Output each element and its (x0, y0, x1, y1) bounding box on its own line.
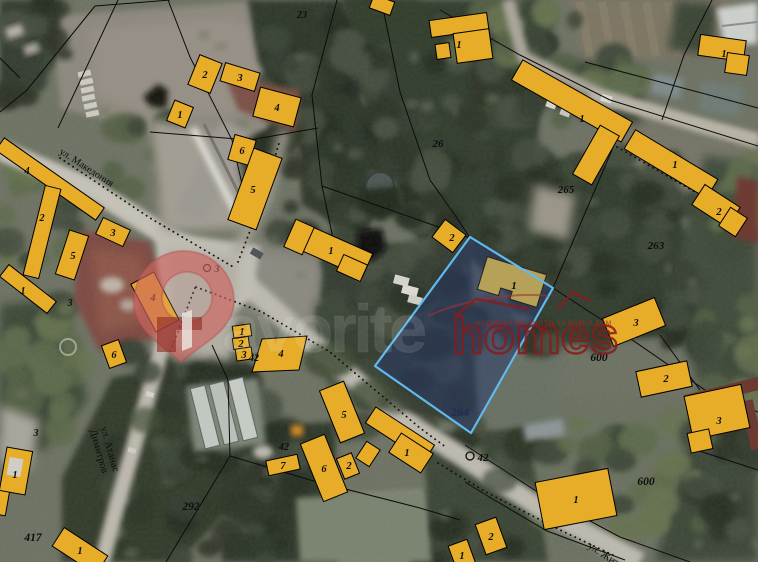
svg-text:1: 1 (177, 110, 182, 121)
svg-text:264: 264 (450, 405, 469, 419)
svg-text:2: 2 (38, 213, 45, 224)
svg-text:5: 5 (250, 185, 255, 196)
svg-text:1: 1 (672, 160, 677, 171)
svg-text:4: 4 (273, 103, 279, 114)
svg-text:417: 417 (23, 532, 43, 544)
svg-text:26: 26 (432, 138, 445, 150)
svg-text:3: 3 (715, 416, 721, 427)
svg-text:3: 3 (67, 298, 73, 309)
svg-text:3: 3 (33, 428, 39, 439)
svg-text:2: 2 (201, 70, 208, 81)
svg-text:4: 4 (23, 166, 29, 177)
svg-text:1: 1 (459, 551, 464, 562)
svg-text:1: 1 (456, 40, 461, 51)
svg-text:1: 1 (579, 114, 584, 125)
svg-text:1: 1 (721, 49, 726, 60)
svg-text:1: 1 (511, 280, 517, 292)
svg-text:7: 7 (280, 461, 286, 472)
svg-text:600: 600 (637, 476, 655, 488)
svg-text:6: 6 (111, 350, 117, 361)
svg-text:42: 42 (477, 452, 490, 464)
svg-text:3: 3 (236, 73, 242, 84)
svg-text:2: 2 (345, 461, 352, 472)
svg-text:1: 1 (20, 286, 25, 297)
svg-text:6: 6 (239, 146, 245, 157)
svg-text:1: 1 (573, 495, 578, 506)
svg-text:292: 292 (181, 501, 200, 513)
svg-text:3: 3 (109, 228, 115, 239)
svg-text:1: 1 (328, 246, 333, 257)
svg-text:1: 1 (77, 546, 82, 557)
svg-text:1: 1 (404, 448, 409, 459)
svg-text:2: 2 (662, 374, 669, 385)
svg-text:3: 3 (632, 318, 638, 329)
svg-text:1: 1 (12, 470, 17, 481)
svg-text:23: 23 (296, 10, 307, 21)
svg-text:5: 5 (70, 251, 75, 262)
svg-text:42: 42 (278, 442, 289, 453)
svg-text:homes: homes (452, 307, 619, 364)
svg-text:2: 2 (487, 532, 494, 543)
svg-text:263: 263 (647, 240, 665, 252)
svg-text:НЕДВИЖИМИ ИМОТИ ЗА ВСЕКИ ДОМ: НЕДВИЖИМИ ИМОТИ ЗА ВСЕКИ ДОМ (476, 320, 612, 327)
svg-text:2: 2 (715, 207, 722, 218)
svg-text:2: 2 (448, 233, 455, 244)
svg-text:265: 265 (557, 184, 575, 196)
svg-text:5: 5 (341, 410, 346, 421)
svg-text:avorite: avorite (222, 291, 425, 367)
svg-text:6: 6 (321, 464, 327, 475)
